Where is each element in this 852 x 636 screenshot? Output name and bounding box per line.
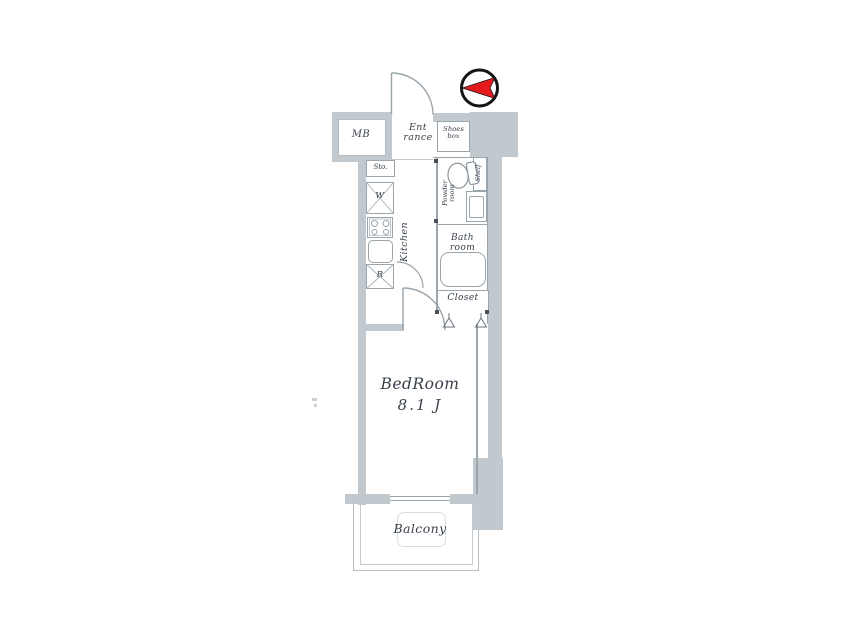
floor-plan: MB Ent rance Shoes box Sto. W Kitchen R … (0, 0, 852, 636)
label-closet: Closet (437, 294, 489, 304)
stove-burners-icon (370, 219, 391, 236)
label-fridge: R (366, 271, 394, 280)
label-shelf: Shelf (475, 158, 485, 188)
north-arrow-icon (462, 70, 498, 106)
label-powder-room: Powder room (442, 171, 460, 215)
label-shoes-box: Shoes box (437, 126, 470, 141)
label-meter-box: MB (338, 130, 384, 141)
label-washer: W (366, 192, 394, 201)
entrance-door-arc (392, 73, 434, 115)
label-bedroom: BedRoom (350, 376, 490, 393)
label-bedroom-size: 8.1 J (350, 397, 490, 413)
label-bath-room: Bath room (437, 234, 488, 253)
label-balcony: Balcony (370, 522, 470, 536)
label-entrance: Ent rance (396, 123, 440, 144)
label-storage: Sto. (366, 164, 395, 172)
hanger-icon (444, 313, 487, 327)
label-kitchen: Kitchen (400, 217, 414, 267)
